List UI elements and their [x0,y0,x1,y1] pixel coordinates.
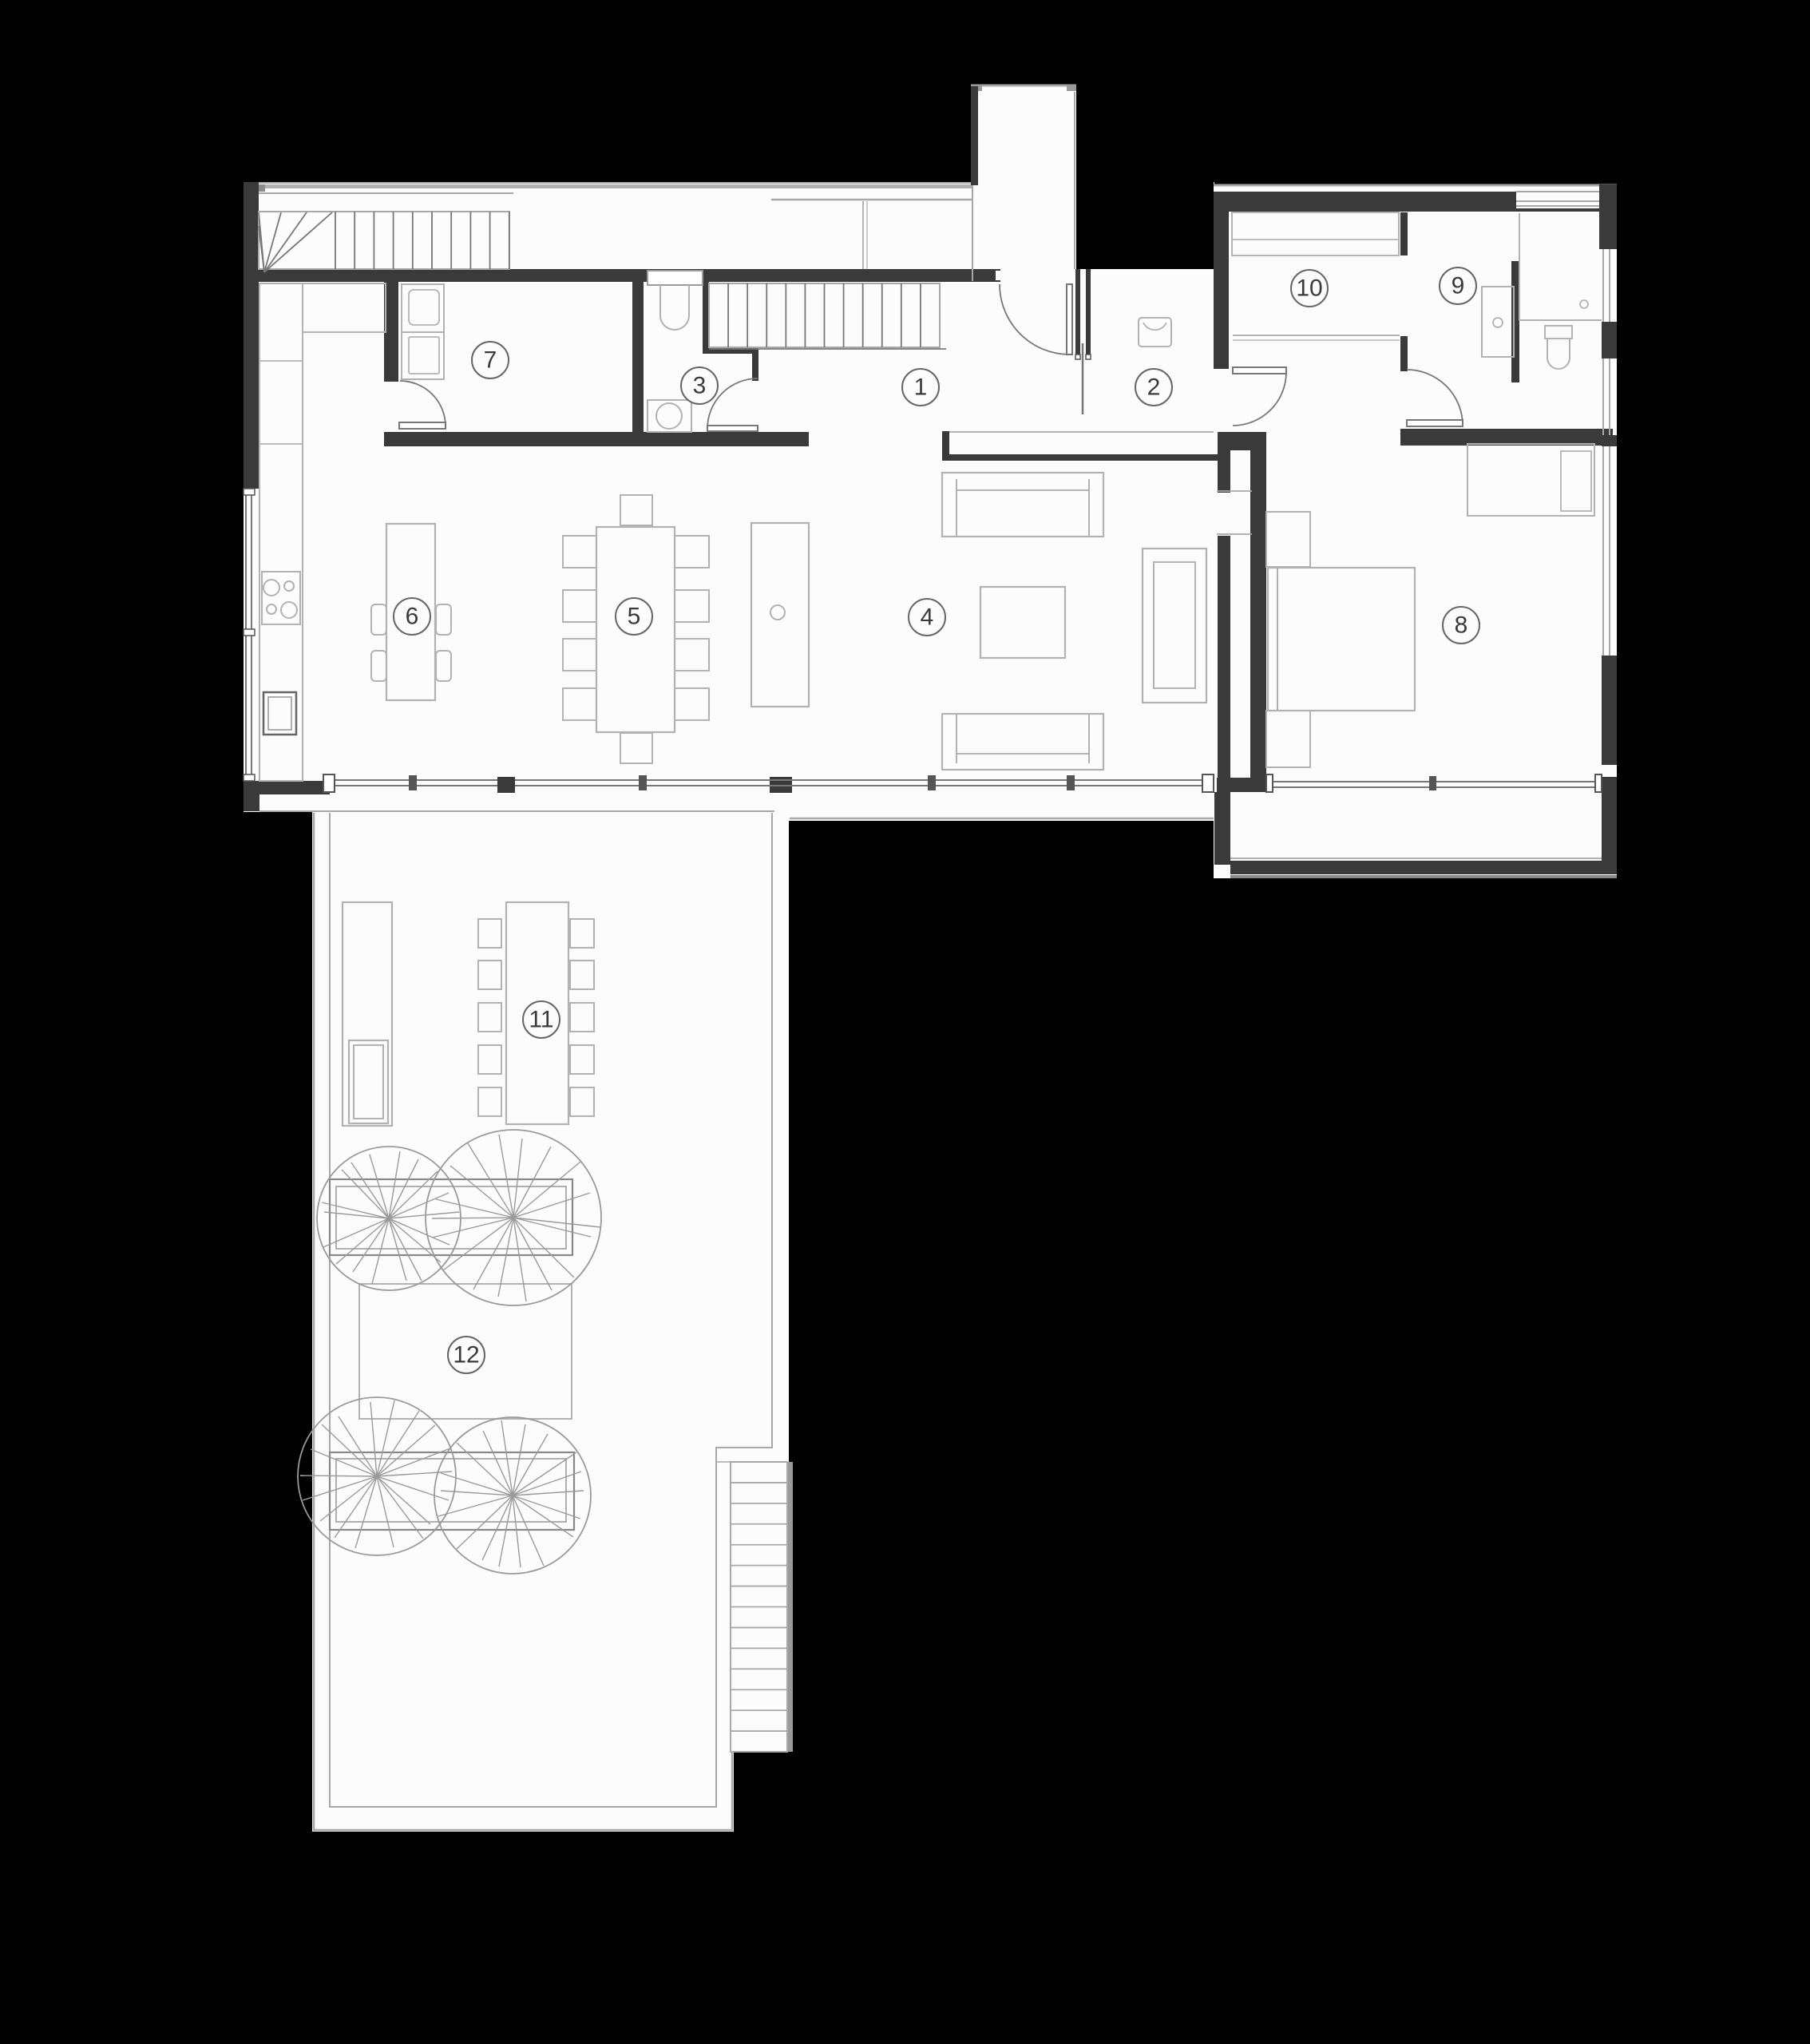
svg-text:12: 12 [453,1342,479,1369]
svg-text:7: 7 [484,347,497,374]
svg-text:8: 8 [1455,612,1468,639]
svg-text:5: 5 [628,604,641,630]
svg-text:1: 1 [914,374,928,401]
svg-text:3: 3 [693,373,707,399]
svg-text:11: 11 [529,1007,553,1033]
svg-text:2: 2 [1147,374,1161,401]
svg-text:6: 6 [406,604,419,630]
svg-text:4: 4 [921,604,934,631]
svg-text:10: 10 [1296,275,1322,302]
svg-text:9: 9 [1452,273,1465,299]
